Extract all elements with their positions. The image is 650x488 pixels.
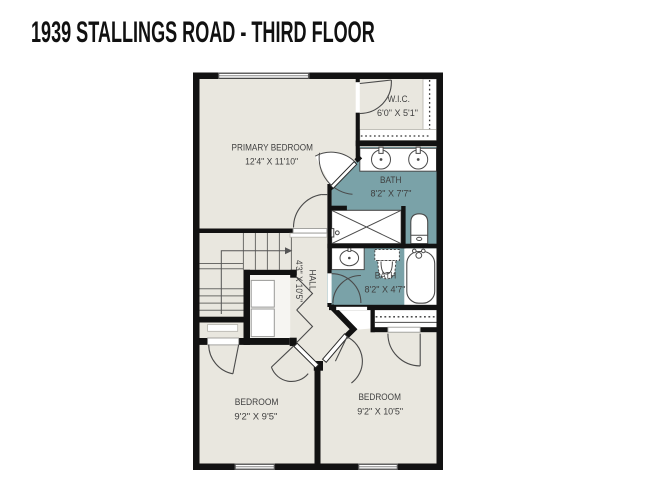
svg-text:4'3" X 10'5": 4'3" X 10'5" <box>293 260 304 302</box>
svg-text:BEDROOM: BEDROOM <box>358 392 401 403</box>
svg-text:8'2" X 7'7": 8'2" X 7'7" <box>371 188 412 199</box>
svg-text:BATH: BATH <box>380 175 402 186</box>
svg-text:9'2" X 9'5": 9'2" X 9'5" <box>234 411 277 422</box>
svg-text:PRIMARY BEDROOM: PRIMARY BEDROOM <box>232 143 313 154</box>
svg-text:9'2" X 10'5": 9'2" X 10'5" <box>357 406 403 417</box>
svg-text:BEDROOM: BEDROOM <box>235 397 279 408</box>
svg-text:8'2" X 4'7": 8'2" X 4'7" <box>365 284 406 295</box>
svg-text:6'0" X 5'1": 6'0" X 5'1" <box>377 108 418 119</box>
svg-text:BATH: BATH <box>375 270 397 281</box>
svg-text:HALL: HALL <box>306 270 317 292</box>
svg-text:W.I.C.: W.I.C. <box>388 94 410 105</box>
svg-text:12'4" X 11'10": 12'4" X 11'10" <box>245 157 298 168</box>
